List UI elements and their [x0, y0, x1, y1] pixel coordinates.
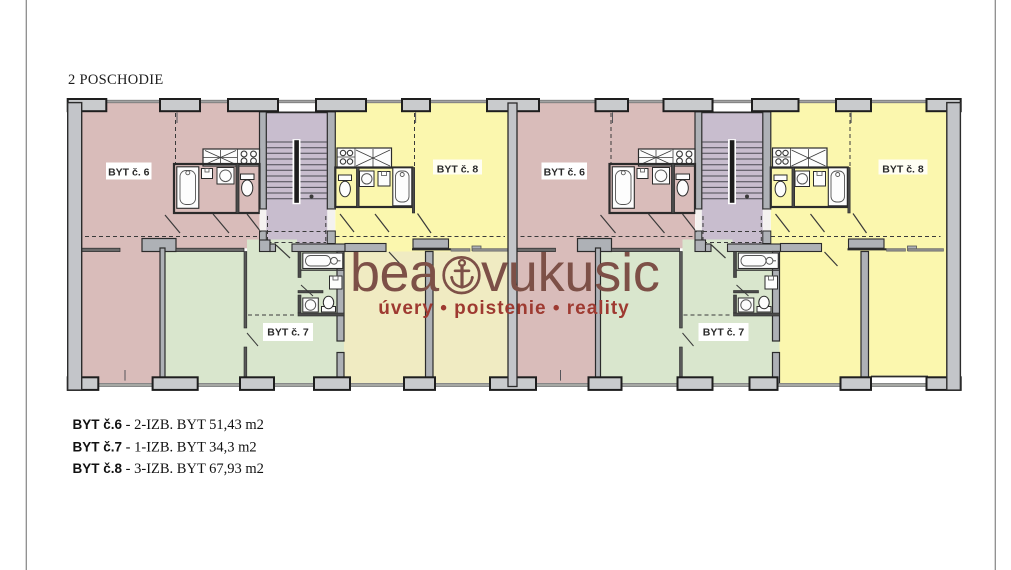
svg-text:BYT č. 6: BYT č. 6: [544, 166, 586, 178]
svg-text:BYT č. 8: BYT č. 8: [882, 163, 924, 175]
svg-text:vukusic: vukusic: [481, 243, 660, 303]
svg-text:BYT č.6 - 2-IZB. BYT 51,43 m2: BYT č.6 - 2-IZB. BYT 51,43 m2: [73, 417, 264, 433]
svg-text:BYT č.7 - 1-IZB. BYT 34,3 m2: BYT č.7 - 1-IZB. BYT 34,3 m2: [73, 439, 257, 455]
svg-text:BYT č. 7: BYT č. 7: [267, 327, 309, 339]
svg-text:bea: bea: [350, 243, 440, 303]
svg-text:BYT č. 6: BYT č. 6: [108, 166, 150, 178]
svg-text:2 POSCHODIE: 2 POSCHODIE: [68, 72, 164, 88]
svg-text:úvery • poistenie • reality: úvery • poistenie • reality: [378, 298, 630, 319]
svg-text:BYT č. 7: BYT č. 7: [703, 327, 745, 339]
svg-text:BYT č.8 - 3-IZB. BYT 67,93 m2: BYT č.8 - 3-IZB. BYT 67,93 m2: [73, 461, 264, 477]
svg-text:BYT č. 8: BYT č. 8: [437, 163, 479, 175]
